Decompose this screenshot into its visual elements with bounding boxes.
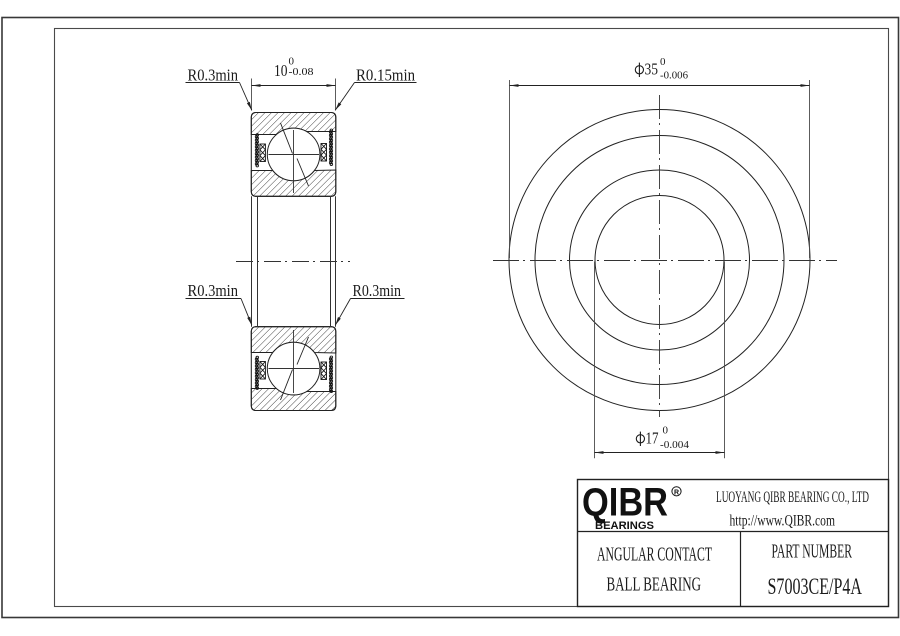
svg-text:R0.3min: R0.3min (188, 66, 239, 85)
svg-text:-0.08: -0.08 (289, 66, 315, 78)
svg-text:R0.15min: R0.15min (356, 66, 415, 85)
svg-text:0: 0 (663, 425, 669, 437)
svg-text:PART NUMBER: PART NUMBER (772, 541, 853, 563)
svg-text:S7003CE/P4A: S7003CE/P4A (768, 574, 863, 599)
svg-text:R0.3min: R0.3min (353, 281, 402, 300)
svg-text:-0.004: -0.004 (660, 439, 690, 451)
svg-text:R0.3min: R0.3min (188, 281, 239, 300)
svg-text:BEARINGS: BEARINGS (595, 520, 654, 532)
svg-text:QIBR: QIBR (582, 481, 668, 525)
svg-text:17: 17 (646, 429, 659, 448)
svg-text:35: 35 (645, 60, 659, 79)
svg-text:ANGULAR CONTACT: ANGULAR CONTACT (597, 544, 712, 566)
svg-text:BALL BEARING: BALL BEARING (607, 574, 702, 596)
svg-text:-0.006: -0.006 (660, 70, 688, 82)
svg-text:0: 0 (660, 56, 666, 68)
svg-text:10: 10 (274, 61, 288, 80)
svg-text:LUOYANG QIBR BEARING CO., LTD: LUOYANG QIBR BEARING CO., LTD (716, 489, 869, 506)
svg-text:http://www.QIBR.com: http://www.QIBR.com (730, 513, 836, 530)
svg-text:R: R (674, 490, 679, 497)
